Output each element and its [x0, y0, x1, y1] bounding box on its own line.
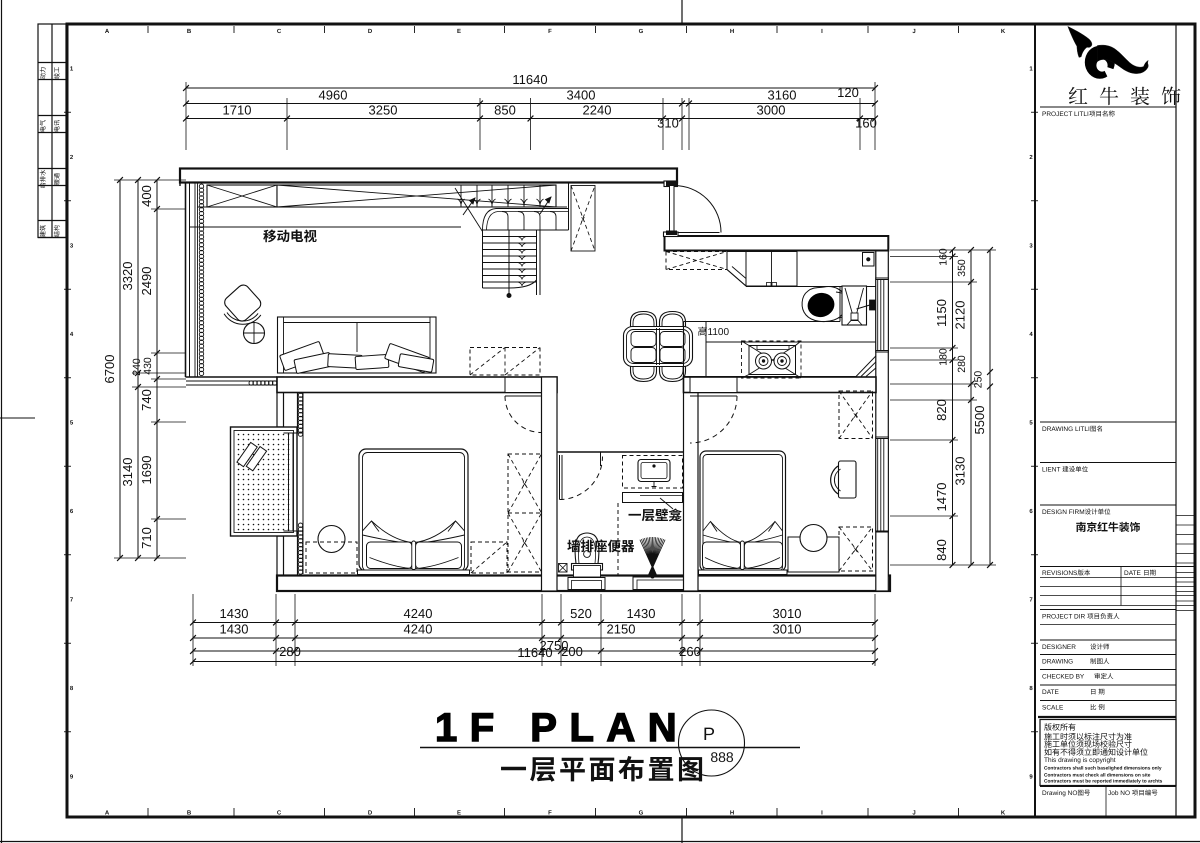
svg-text:DESIGN FIRM: DESIGN FIRM	[1042, 509, 1085, 516]
svg-text:Contractors must be reported i: Contractors must be reported immediately…	[1044, 779, 1163, 785]
svg-text:LIENT: LIENT	[1042, 467, 1060, 474]
svg-text:3130: 3130	[953, 457, 968, 486]
svg-text:This drawing is copyright: This drawing is copyright	[1044, 757, 1116, 764]
svg-text:Job NO: Job NO	[1108, 790, 1130, 797]
svg-text:3010: 3010	[773, 606, 802, 621]
svg-text:280: 280	[279, 644, 301, 659]
svg-text:2240: 2240	[583, 103, 612, 118]
svg-text:1150: 1150	[934, 299, 949, 327]
svg-text:200: 200	[561, 644, 583, 659]
svg-text:DATE: DATE	[1042, 689, 1060, 696]
svg-text:C: C	[277, 28, 282, 35]
svg-text:E: E	[457, 28, 461, 35]
svg-text:P: P	[703, 724, 715, 744]
svg-text:DATE: DATE	[1124, 570, 1142, 577]
svg-text:SCALE: SCALE	[1042, 705, 1064, 712]
svg-text:PROJECT DIR: PROJECT DIR	[1042, 614, 1086, 621]
svg-text:888: 888	[710, 749, 734, 765]
svg-text:x: x	[853, 410, 858, 420]
svg-text:4240: 4240	[404, 606, 433, 621]
svg-text:520: 520	[570, 606, 592, 621]
svg-text:160: 160	[938, 248, 950, 266]
svg-text:A: A	[105, 810, 110, 817]
svg-text:DRAWING: DRAWING	[1042, 659, 1073, 666]
svg-text:1430: 1430	[627, 606, 656, 621]
svg-text:840: 840	[934, 539, 949, 561]
svg-text:A: A	[105, 28, 110, 35]
svg-text:Drawing NO: Drawing NO	[1042, 790, 1077, 797]
svg-text:PROJECT LITLI: PROJECT LITLI	[1042, 111, 1089, 118]
svg-text:F: F	[548, 810, 552, 817]
svg-text:1690: 1690	[139, 456, 154, 485]
svg-text:180: 180	[938, 348, 950, 366]
svg-text:350: 350	[956, 259, 968, 277]
svg-text:120: 120	[837, 85, 859, 100]
svg-text:710: 710	[139, 527, 154, 549]
svg-text:820: 820	[934, 399, 949, 421]
svg-text:2490: 2490	[139, 267, 154, 296]
svg-text:250: 250	[973, 371, 985, 389]
svg-text:1100: 1100	[708, 327, 730, 338]
svg-text:1470: 1470	[934, 483, 949, 512]
svg-text:4960: 4960	[319, 88, 348, 103]
svg-text:740: 740	[139, 389, 154, 411]
svg-text:280: 280	[956, 355, 968, 373]
svg-text:11640: 11640	[517, 645, 552, 660]
svg-text:430: 430	[142, 357, 154, 375]
svg-text:3140: 3140	[120, 458, 135, 487]
svg-text:B: B	[187, 28, 192, 35]
svg-text:Contractors shall such baselig: Contractors shall such baselighed dimens…	[1044, 766, 1162, 772]
svg-text:160: 160	[855, 116, 877, 131]
svg-text:3160: 3160	[768, 88, 797, 103]
svg-text:2120: 2120	[953, 301, 968, 330]
svg-text:260: 260	[679, 644, 701, 659]
svg-text:K: K	[1001, 810, 1006, 817]
svg-text:B: B	[187, 810, 192, 817]
svg-text:3320: 3320	[120, 262, 135, 291]
svg-text:2150: 2150	[607, 622, 636, 637]
svg-text:G: G	[639, 810, 644, 817]
svg-text:REVISIONS: REVISIONS	[1042, 570, 1078, 577]
svg-text:3250: 3250	[369, 103, 398, 118]
svg-text:J: J	[912, 28, 915, 35]
svg-text:C: C	[277, 810, 282, 817]
svg-text:F: F	[548, 28, 552, 35]
svg-text:x: x	[522, 479, 527, 489]
svg-text:1710: 1710	[223, 103, 252, 118]
svg-text:Contractors must check all dim: Contractors must check all dimensions on…	[1044, 773, 1151, 779]
svg-text:6700: 6700	[102, 355, 117, 384]
svg-text:1430: 1430	[220, 622, 249, 637]
svg-text:400: 400	[139, 185, 154, 207]
svg-text:DRAWING LITLI: DRAWING LITLI	[1042, 426, 1090, 433]
svg-text:11640: 11640	[512, 72, 547, 87]
svg-text:4240: 4240	[404, 622, 433, 637]
svg-text:H: H	[730, 810, 734, 817]
svg-text:D: D	[368, 28, 373, 35]
svg-text:850: 850	[494, 103, 516, 118]
svg-text:x: x	[853, 544, 858, 554]
svg-text:3010: 3010	[773, 622, 802, 637]
svg-text:x: x	[522, 538, 527, 548]
svg-text:K: K	[1001, 28, 1006, 35]
svg-text:DESIGNER: DESIGNER	[1042, 644, 1076, 651]
svg-text:J: J	[912, 810, 915, 817]
svg-text:310: 310	[657, 116, 679, 131]
svg-text:CHECKED BY: CHECKED BY	[1042, 674, 1085, 681]
svg-text:1430: 1430	[220, 606, 249, 621]
svg-text:H: H	[730, 28, 734, 35]
svg-text:x: x	[581, 215, 585, 224]
svg-text:G: G	[639, 28, 644, 35]
svg-text:5500: 5500	[972, 406, 987, 435]
svg-text:D: D	[368, 810, 373, 817]
svg-text:E: E	[457, 810, 461, 817]
svg-text:3000: 3000	[757, 103, 786, 118]
svg-text:3400: 3400	[567, 88, 596, 103]
svg-text:1F PLAN: 1F PLAN	[435, 706, 689, 750]
